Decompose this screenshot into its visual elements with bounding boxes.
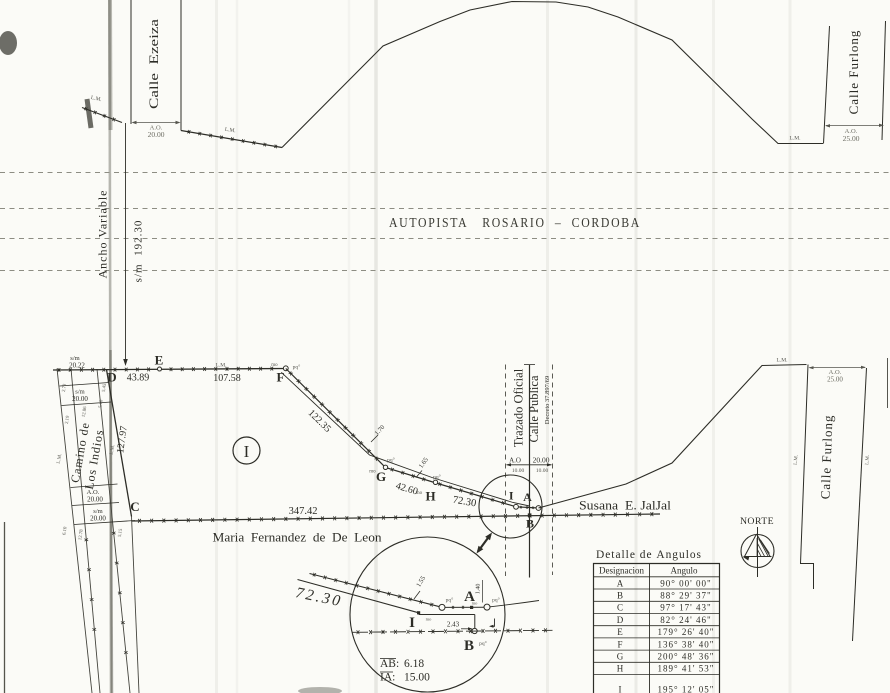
svg-text:25.00: 25.00 <box>843 134 860 143</box>
svg-text:10.00: 10.00 <box>512 468 525 474</box>
svg-text:20.00: 20.00 <box>148 130 165 139</box>
svg-text:Calle Furlong: Calle Furlong <box>846 30 861 115</box>
svg-text:F: F <box>617 639 622 649</box>
svg-text:Maria Fernandez de De Leon: Maria Fernandez de De Leon <box>213 531 383 545</box>
svg-text:20.00: 20.00 <box>72 395 88 403</box>
svg-text:Calle Publica: Calle Publica <box>527 375 541 442</box>
svg-text:A: A <box>464 589 475 605</box>
svg-text:136° 38' 40": 136° 38' 40" <box>658 639 715 649</box>
svg-text:pq°: pq° <box>293 364 301 371</box>
svg-text:L.M.: L.M. <box>216 363 228 369</box>
svg-text:A: A <box>617 578 624 588</box>
svg-text:6.18: 6.18 <box>404 658 424 670</box>
svg-text:A.O: A.O <box>509 457 521 465</box>
svg-text:20.00: 20.00 <box>533 456 550 465</box>
svg-text:Trazado Oficial: Trazado Oficial <box>512 368 526 447</box>
svg-text:mo: mo <box>426 617 433 622</box>
svg-text:200° 48' 36": 200° 48' 36" <box>658 652 715 662</box>
svg-text:pq°: pq° <box>387 457 395 464</box>
svg-text:AB:: AB: <box>380 658 399 670</box>
svg-text:20.00: 20.00 <box>87 496 103 504</box>
svg-text:B: B <box>526 517 534 531</box>
svg-text:s/m 192.30: s/m 192.30 <box>133 220 145 283</box>
svg-text:pq°: pq° <box>479 640 487 647</box>
svg-text:AUTOPISTA ROSARIO – CORDOB: AUTOPISTA ROSARIO – CORDOBA <box>389 216 641 231</box>
svg-text:H: H <box>425 489 435 504</box>
svg-text:D: D <box>617 615 624 625</box>
svg-text:C: C <box>130 499 139 514</box>
svg-text:F: F <box>277 370 285 385</box>
svg-text:B: B <box>617 591 623 601</box>
svg-text:15.00: 15.00 <box>404 672 430 684</box>
svg-text:Calle Ezeiza: Calle Ezeiza <box>146 19 161 109</box>
svg-text:NORTE: NORTE <box>740 516 774 527</box>
svg-text:Calle Furlong: Calle Furlong <box>818 414 836 499</box>
svg-text:pq°: pq° <box>492 597 500 604</box>
svg-text:Susana E. JalJal: Susana E. JalJal <box>579 499 672 513</box>
svg-text:Decreto 37.897/69: Decreto 37.897/69 <box>544 376 551 424</box>
svg-text:I: I <box>619 685 622 693</box>
svg-text:20.00: 20.00 <box>90 515 106 523</box>
svg-text:107.58: 107.58 <box>213 373 241 384</box>
svg-text:L.M.: L.M. <box>790 136 802 142</box>
svg-text:I: I <box>244 442 250 461</box>
svg-text:10.00: 10.00 <box>536 468 549 474</box>
svg-text:I: I <box>409 615 415 631</box>
svg-text:mo: mo <box>271 363 278 368</box>
svg-text:A: A <box>523 490 532 504</box>
svg-text:347.42: 347.42 <box>289 506 318 517</box>
svg-text:pq°: pq° <box>446 597 454 604</box>
svg-text:82° 24' 46": 82° 24' 46" <box>660 615 711 625</box>
svg-text:179° 26' 40": 179° 26' 40" <box>658 627 715 637</box>
svg-text:I: I <box>509 489 514 503</box>
svg-text:Ancho Variable: Ancho Variable <box>96 190 110 279</box>
svg-text:97° 17' 43": 97° 17' 43" <box>660 603 711 613</box>
svg-text:B: B <box>464 638 474 654</box>
svg-text:189° 41' 53": 189° 41' 53" <box>658 664 715 674</box>
svg-text:pq°: pq° <box>433 474 441 481</box>
svg-text:195° 12' 05": 195° 12' 05" <box>658 685 715 693</box>
svg-text:H: H <box>617 664 624 674</box>
svg-text:2.43: 2.43 <box>447 621 460 629</box>
svg-text:25.00: 25.00 <box>827 376 843 384</box>
svg-text:E: E <box>155 353 164 368</box>
svg-text:mo: mo <box>416 491 423 496</box>
svg-text:88° 29' 37": 88° 29' 37" <box>660 591 711 601</box>
svg-text:90° 00' 00": 90° 00' 00" <box>660 578 711 588</box>
svg-text:Designacion: Designacion <box>599 566 644 576</box>
svg-text:C: C <box>617 603 623 613</box>
svg-text:Detalle de Angulos: Detalle de Angulos <box>596 549 702 561</box>
svg-text:E: E <box>617 627 623 637</box>
svg-text:L.M.: L.M. <box>777 358 789 364</box>
svg-text:43.89: 43.89 <box>127 373 150 384</box>
svg-text:Angulo: Angulo <box>671 566 699 576</box>
svg-text:L.M.: L.M. <box>865 455 871 465</box>
svg-text:G: G <box>376 469 386 484</box>
svg-text:L.M.: L.M. <box>794 455 800 465</box>
svg-text:IA:: IA: <box>380 672 395 684</box>
svg-text:G: G <box>617 652 624 662</box>
svg-text:1.40: 1.40 <box>475 584 482 595</box>
